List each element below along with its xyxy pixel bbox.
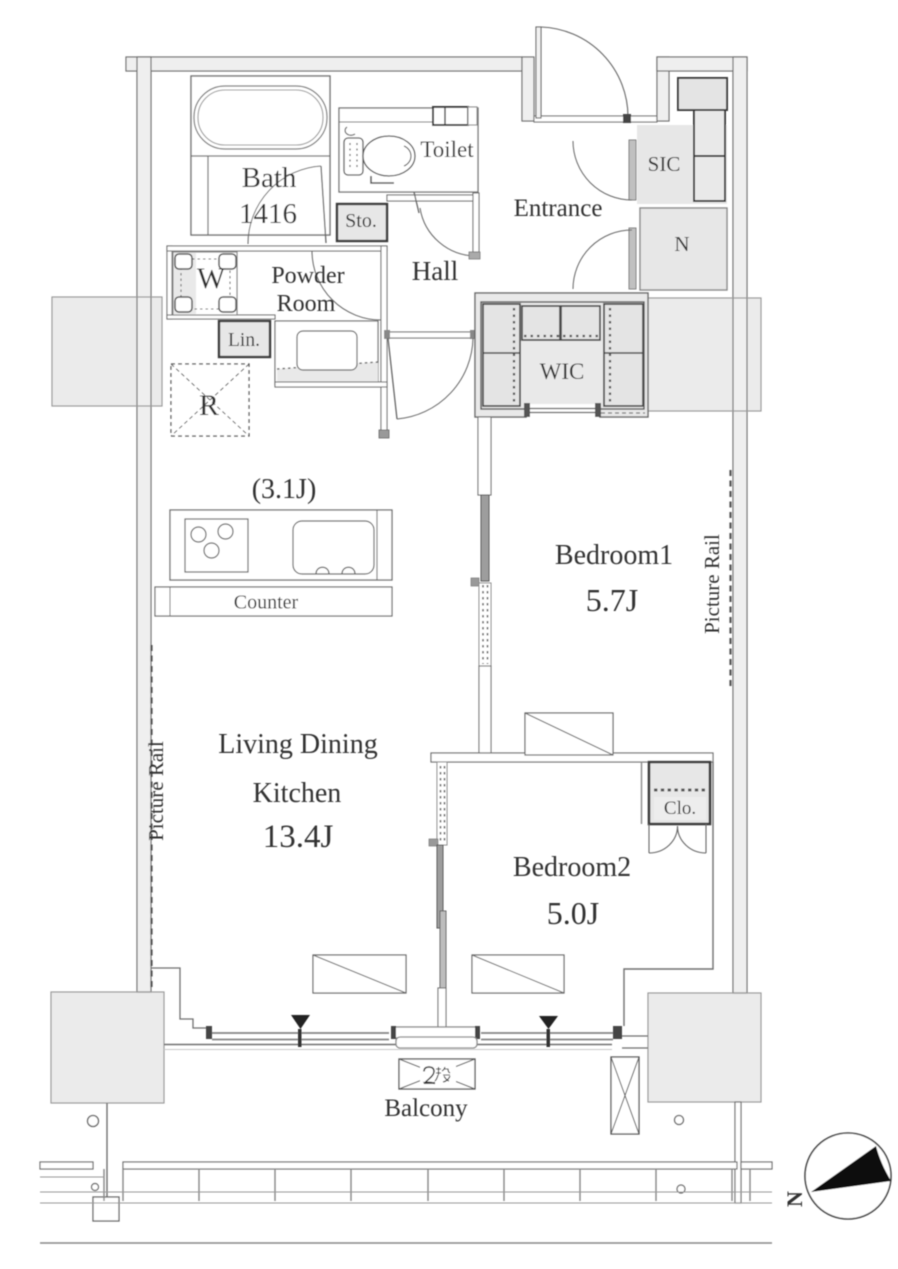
svg-text:Clo.: Clo. — [664, 798, 696, 819]
svg-text:Bedroom2: Bedroom2 — [513, 852, 631, 883]
svg-text:Picture Rail: Picture Rail — [144, 741, 168, 841]
svg-text:Living Dining: Living Dining — [218, 729, 377, 760]
svg-text:SIC: SIC — [648, 152, 681, 176]
svg-text:N: N — [782, 1191, 807, 1207]
svg-text:W: W — [197, 262, 226, 295]
svg-text:5.7J: 5.7J — [586, 582, 638, 618]
svg-text:Powder: Powder — [271, 263, 344, 289]
svg-text:Sto.: Sto. — [345, 210, 377, 232]
svg-text:Hall: Hall — [412, 256, 459, 286]
svg-text:Lin.: Lin. — [228, 330, 260, 351]
svg-text:R: R — [199, 389, 219, 422]
svg-text:N: N — [674, 232, 689, 256]
svg-text:Room: Room — [277, 291, 336, 317]
svg-text:Picture Rail: Picture Rail — [700, 534, 724, 634]
svg-text:Kitchen: Kitchen — [253, 778, 342, 809]
svg-text:13.4J: 13.4J — [263, 819, 334, 855]
svg-text:Entrance: Entrance — [514, 195, 603, 222]
svg-text:Bath: Bath — [242, 162, 297, 194]
svg-text:(3.1J): (3.1J) — [252, 474, 317, 505]
svg-text:WIC: WIC — [540, 359, 585, 384]
svg-text:5.0J: 5.0J — [547, 895, 599, 931]
svg-text:Counter: Counter — [234, 592, 299, 614]
svg-text:Bedroom1: Bedroom1 — [555, 540, 673, 571]
svg-text:Balcony: Balcony — [384, 1095, 468, 1122]
svg-text:Toilet: Toilet — [420, 137, 474, 162]
svg-text:1416: 1416 — [239, 198, 297, 230]
